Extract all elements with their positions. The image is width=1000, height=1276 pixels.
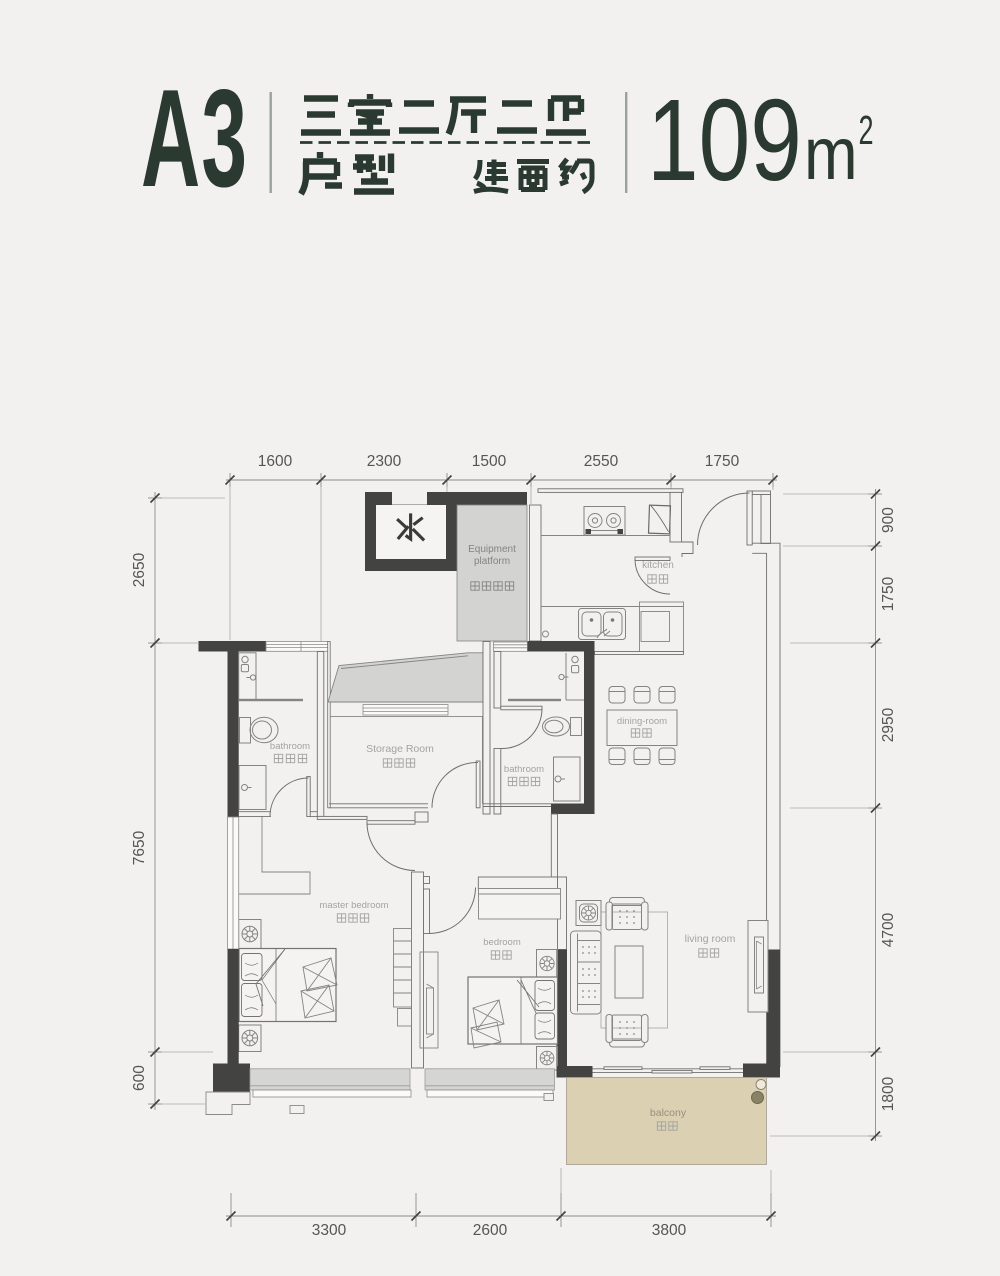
svg-text:2300: 2300 [367,453,402,470]
svg-text:bathroom: bathroom [504,764,544,775]
svg-text:900: 900 [880,507,897,533]
svg-text:balcony: balcony [650,1107,687,1119]
svg-text:1750: 1750 [705,453,740,470]
svg-text:3300: 3300 [312,1222,347,1239]
svg-text:bedroom: bedroom [483,937,521,948]
svg-text:2600: 2600 [473,1222,508,1239]
svg-text:1750: 1750 [880,576,897,611]
svg-text:Equipment: Equipment [468,544,516,555]
svg-text:bathroom: bathroom [270,741,310,752]
svg-text:platform: platform [474,556,510,567]
svg-text:A3: A3 [141,62,248,217]
svg-text:2: 2 [859,109,874,154]
svg-text:Storage Room: Storage Room [366,743,434,755]
svg-text:master bedroom: master bedroom [319,900,388,911]
svg-text:2550: 2550 [584,453,619,470]
svg-text:600: 600 [131,1065,148,1091]
svg-text:kitchen: kitchen [642,560,674,571]
svg-text:1800: 1800 [880,1076,897,1111]
svg-text:living room: living room [685,933,736,945]
svg-text:4700: 4700 [880,912,897,947]
svg-text:dining-room: dining-room [617,716,667,727]
svg-text:m: m [804,112,858,195]
svg-text:109: 109 [647,76,802,205]
svg-text:2650: 2650 [131,552,148,587]
svg-text:2950: 2950 [880,707,897,742]
svg-text:1600: 1600 [258,453,293,470]
svg-text:1500: 1500 [472,453,507,470]
svg-text:3800: 3800 [652,1222,687,1239]
svg-text:7650: 7650 [131,830,148,865]
